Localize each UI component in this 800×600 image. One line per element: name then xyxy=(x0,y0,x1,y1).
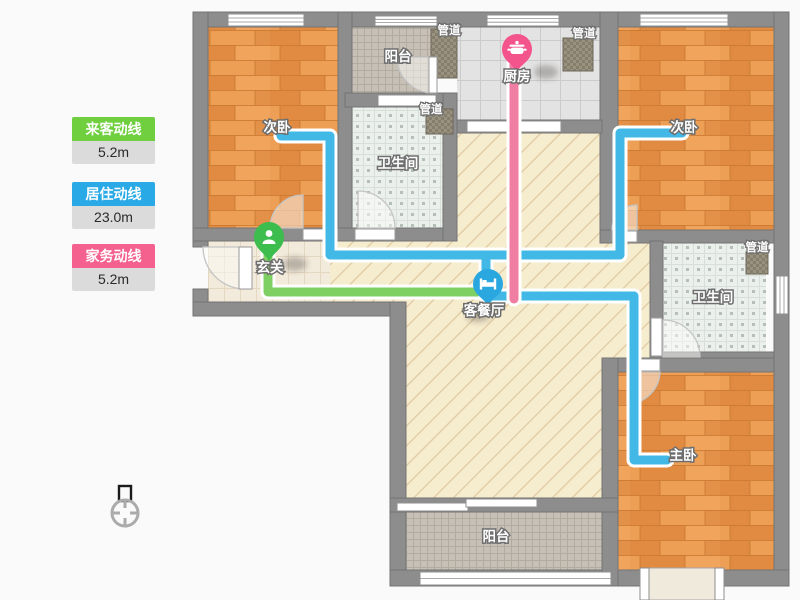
north-compass-icon xyxy=(112,486,138,526)
legend-item-visitor: 来客动线 5.2m xyxy=(72,117,155,164)
legend-visitor-value: 5.2m xyxy=(72,141,155,164)
label-master-bedroom: 主卧 xyxy=(670,447,698,463)
window xyxy=(640,14,728,26)
floorplan-page: 次卧 阳台 厨房 次卧 卫生间 玄关 客餐厅 卫生间 主卧 阳台 管道 管道 管… xyxy=(0,0,800,600)
wall xyxy=(602,358,618,586)
label-duct: 管道 xyxy=(420,102,443,116)
duct-shaft xyxy=(563,38,593,71)
compass-ticks xyxy=(114,502,137,525)
door-opening xyxy=(651,318,662,356)
door-leaf-entry xyxy=(239,247,252,289)
sliding-door-panel xyxy=(466,499,537,507)
label-duct: 管道 xyxy=(573,26,596,40)
label-bedroom-right: 次卧 xyxy=(671,119,699,135)
label-balcony-top: 阳台 xyxy=(385,48,412,64)
label-duct: 管道 xyxy=(438,23,461,37)
bay-window xyxy=(640,568,724,600)
wall xyxy=(193,12,208,247)
legend-item-resident: 居住动线 23.0m xyxy=(72,182,155,229)
legend-visitor-label: 来客动线 xyxy=(72,117,155,141)
label-living-dining: 客餐厅 xyxy=(463,302,505,318)
wall xyxy=(390,302,406,586)
legend-resident-label: 居住动线 xyxy=(72,182,155,206)
window xyxy=(487,15,559,26)
legend-chore-label: 家务动线 xyxy=(72,244,155,268)
window xyxy=(228,14,304,26)
wall xyxy=(338,12,352,241)
wall xyxy=(193,302,406,316)
sliding-door-panel xyxy=(397,503,468,511)
door-leaf-balcony xyxy=(429,57,437,93)
legend-chore-value: 5.2m xyxy=(72,268,155,291)
label-kitchen: 厨房 xyxy=(504,68,531,84)
label-entrance: 玄关 xyxy=(257,259,284,275)
label-bedroom-left: 次卧 xyxy=(264,119,291,135)
label-bathroom-right: 卫生间 xyxy=(693,289,734,305)
duct-shaft xyxy=(746,252,768,274)
label-bathroom-top: 卫生间 xyxy=(378,155,419,171)
room-living-dining xyxy=(406,302,602,498)
legend-item-chore: 家务动线 5.2m xyxy=(72,244,155,291)
label-balcony-bottom: 阳台 xyxy=(483,528,510,544)
window xyxy=(375,16,437,26)
legend-resident-value: 23.0m xyxy=(72,206,155,229)
floorplan-canvas: 次卧 阳台 厨房 次卧 卫生间 玄关 客餐厅 卫生间 主卧 阳台 管道 管道 管… xyxy=(0,0,800,600)
door-opening xyxy=(355,229,395,240)
window xyxy=(776,276,788,314)
room-corridor-center xyxy=(457,133,602,241)
label-duct: 管道 xyxy=(746,240,769,254)
